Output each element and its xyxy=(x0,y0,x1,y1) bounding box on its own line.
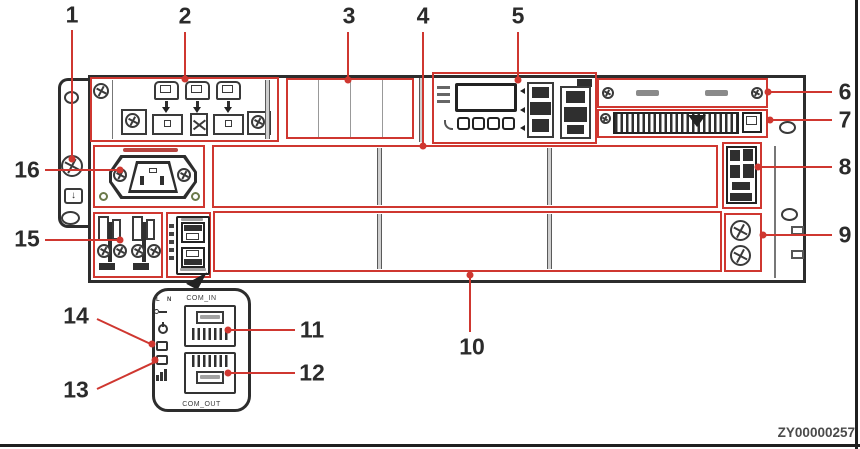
blank-slot-divider xyxy=(318,80,319,137)
power-icon-tick xyxy=(162,322,164,327)
connector-pin-block xyxy=(730,165,740,178)
callout-13-dot xyxy=(152,357,159,364)
callout-1-dot xyxy=(69,156,76,163)
slot-divider xyxy=(377,148,382,205)
pointer-mark-icon xyxy=(520,125,525,131)
blank-slot-divider xyxy=(350,80,351,137)
page-border-right xyxy=(855,0,858,449)
dc-terminal-foot xyxy=(133,263,149,270)
terminal-screw-icon xyxy=(113,244,127,258)
panel-seam xyxy=(265,80,270,139)
menu-button xyxy=(457,117,470,130)
panel-slot-mark xyxy=(636,90,659,96)
module-slot-row-upper-box xyxy=(212,145,718,208)
key-icon xyxy=(154,308,167,314)
terminal-screw-icon xyxy=(730,220,751,241)
callout-4-line xyxy=(422,32,424,145)
port-pins xyxy=(564,107,587,122)
terminal-screw-icon xyxy=(97,244,111,258)
panel-slot-mark xyxy=(705,90,728,96)
slot-divider xyxy=(377,214,382,269)
ac-pin xyxy=(140,176,144,185)
indicator-dot xyxy=(191,192,200,201)
callout-14-line xyxy=(97,318,153,346)
port-label-text xyxy=(200,315,220,319)
terminal-screw-icon xyxy=(147,244,161,258)
port-tab xyxy=(532,119,549,132)
mounting-hole-icon xyxy=(781,208,798,221)
ac-pin xyxy=(160,176,164,185)
slot-divider xyxy=(547,148,552,205)
callout-4-dot xyxy=(420,143,427,150)
mounting-hole-icon xyxy=(61,211,80,225)
callout-11-label: 11 xyxy=(300,319,324,342)
connector-pin-block xyxy=(732,182,750,190)
callout-7-label: 7 xyxy=(839,109,852,132)
callout-13-line xyxy=(97,361,156,390)
fuse-terminal-window xyxy=(164,120,171,127)
signal-port-window xyxy=(746,116,757,125)
callout-10-line xyxy=(469,275,471,332)
ac-pin-ground xyxy=(149,168,157,173)
callout-2-dot xyxy=(182,76,189,83)
menu-button xyxy=(502,117,515,130)
panel-seam xyxy=(112,80,113,139)
callout-1-line xyxy=(71,30,73,158)
screw-icon xyxy=(177,168,191,182)
pointer-mark-icon xyxy=(520,107,525,113)
screw-icon xyxy=(251,115,265,129)
callout-16-label: 16 xyxy=(14,159,40,182)
breaker-window xyxy=(160,85,171,93)
right-bracket-notch xyxy=(791,250,804,259)
callout-3-label: 3 xyxy=(343,5,356,28)
callout-3-line xyxy=(347,32,349,79)
com-out-port-pins xyxy=(192,355,228,367)
com-out-label: COM_OUT xyxy=(152,401,251,408)
dc-terminal-foot xyxy=(99,263,115,270)
callout-2-label: 2 xyxy=(179,5,192,28)
watermark: ZY00000257 xyxy=(640,426,855,440)
screw-icon xyxy=(600,113,611,124)
port-tab xyxy=(567,125,584,134)
callout-6-dot xyxy=(765,89,772,96)
callout-10-dot xyxy=(467,272,474,279)
callout-15-line xyxy=(45,239,120,241)
callout-7-dot xyxy=(767,117,774,124)
connector-pin-block xyxy=(743,164,754,178)
com-in-port-pins xyxy=(192,328,228,340)
callout-16-line xyxy=(45,169,120,171)
port-window xyxy=(186,250,199,257)
callout-12-label: 12 xyxy=(299,362,325,385)
filler-panel-box xyxy=(597,78,768,108)
port-pins xyxy=(184,225,202,231)
callout-9-line xyxy=(763,234,832,236)
menu-button xyxy=(487,117,500,130)
slot-divider xyxy=(547,214,552,269)
callout-5-dot xyxy=(515,77,522,84)
port-tab xyxy=(532,87,549,98)
connector-pin-block xyxy=(730,150,740,161)
lcd-display xyxy=(455,83,517,112)
indicator-dot xyxy=(99,192,108,201)
connector-pin-block xyxy=(743,149,753,161)
callout-6-label: 6 xyxy=(839,81,852,104)
port-window xyxy=(186,233,199,240)
callout-6-line xyxy=(768,91,832,93)
callout-5-label: 5 xyxy=(512,5,525,28)
pointer-mark-icon xyxy=(520,88,525,94)
rear-panel-diagram: ↓ xyxy=(0,0,860,449)
breaker-arrow-icon xyxy=(162,107,170,113)
terminal-screw-icon xyxy=(730,245,751,266)
screw-icon xyxy=(125,113,140,128)
signal-bar xyxy=(160,372,163,381)
ground-arrow-icon: ↓ xyxy=(71,190,76,201)
run-led xyxy=(156,341,168,351)
busbar-x-block xyxy=(190,113,208,136)
key-icon-bar xyxy=(159,311,167,313)
callout-12-line xyxy=(228,372,295,374)
mounting-hole-icon xyxy=(779,121,796,134)
pin-label-l: L xyxy=(156,297,160,303)
callout-9-label: 9 xyxy=(839,224,852,247)
com-led-column xyxy=(169,224,174,262)
callout-3-dot xyxy=(345,77,352,84)
com-module-label xyxy=(181,218,203,221)
screw-icon xyxy=(93,83,109,99)
terminal-strip xyxy=(613,112,739,134)
callout-7-line xyxy=(770,119,832,121)
connector-pin-block xyxy=(730,193,752,201)
ground-symbol-plate: ↓ xyxy=(64,188,83,204)
ac-warning-label xyxy=(123,148,178,152)
callout-2-line xyxy=(184,32,186,78)
callout-8-dot xyxy=(755,164,762,171)
breaker-arrow-icon xyxy=(224,107,232,113)
dc-terminal-block xyxy=(146,219,155,240)
callout-15-dot xyxy=(117,237,124,244)
terminal-strip-tab xyxy=(688,115,706,127)
callout-12-dot xyxy=(225,370,232,377)
menu-button xyxy=(472,117,485,130)
port-pins xyxy=(184,259,202,265)
pin-label-n: N xyxy=(167,297,171,303)
module-slot-row-lower-box xyxy=(213,211,722,272)
port-pins xyxy=(530,102,551,115)
callout-14-dot xyxy=(149,341,156,348)
blank-slot-divider xyxy=(382,80,383,137)
callout-5-line xyxy=(517,32,519,79)
screw-icon xyxy=(602,87,614,99)
callout-15-label: 15 xyxy=(14,228,40,251)
page-border-bottom xyxy=(0,444,860,447)
port-tab xyxy=(566,91,585,103)
port-label-text xyxy=(200,375,220,379)
status-led-labels xyxy=(437,86,450,104)
callout-10-label: 10 xyxy=(459,336,485,359)
screw-icon xyxy=(751,87,763,99)
callout-8-line xyxy=(758,166,832,168)
callout-13-label: 13 xyxy=(63,379,89,402)
terminal-screw-icon xyxy=(131,244,145,258)
callout-11-dot xyxy=(225,327,232,334)
callout-9-dot xyxy=(760,232,767,239)
breaker-window xyxy=(191,85,202,93)
callout-8-label: 8 xyxy=(839,156,852,179)
breaker-window xyxy=(222,85,233,93)
signal-bar xyxy=(164,369,167,381)
callout-16-dot xyxy=(117,167,124,174)
signal-bar xyxy=(156,375,159,381)
fuse-terminal-window xyxy=(225,120,232,127)
signal-icon xyxy=(156,369,168,381)
callout-11-line xyxy=(228,329,295,331)
callout-1-label: 1 xyxy=(66,4,79,27)
callout-14-label: 14 xyxy=(63,305,89,328)
callout-4-label: 4 xyxy=(417,5,430,28)
